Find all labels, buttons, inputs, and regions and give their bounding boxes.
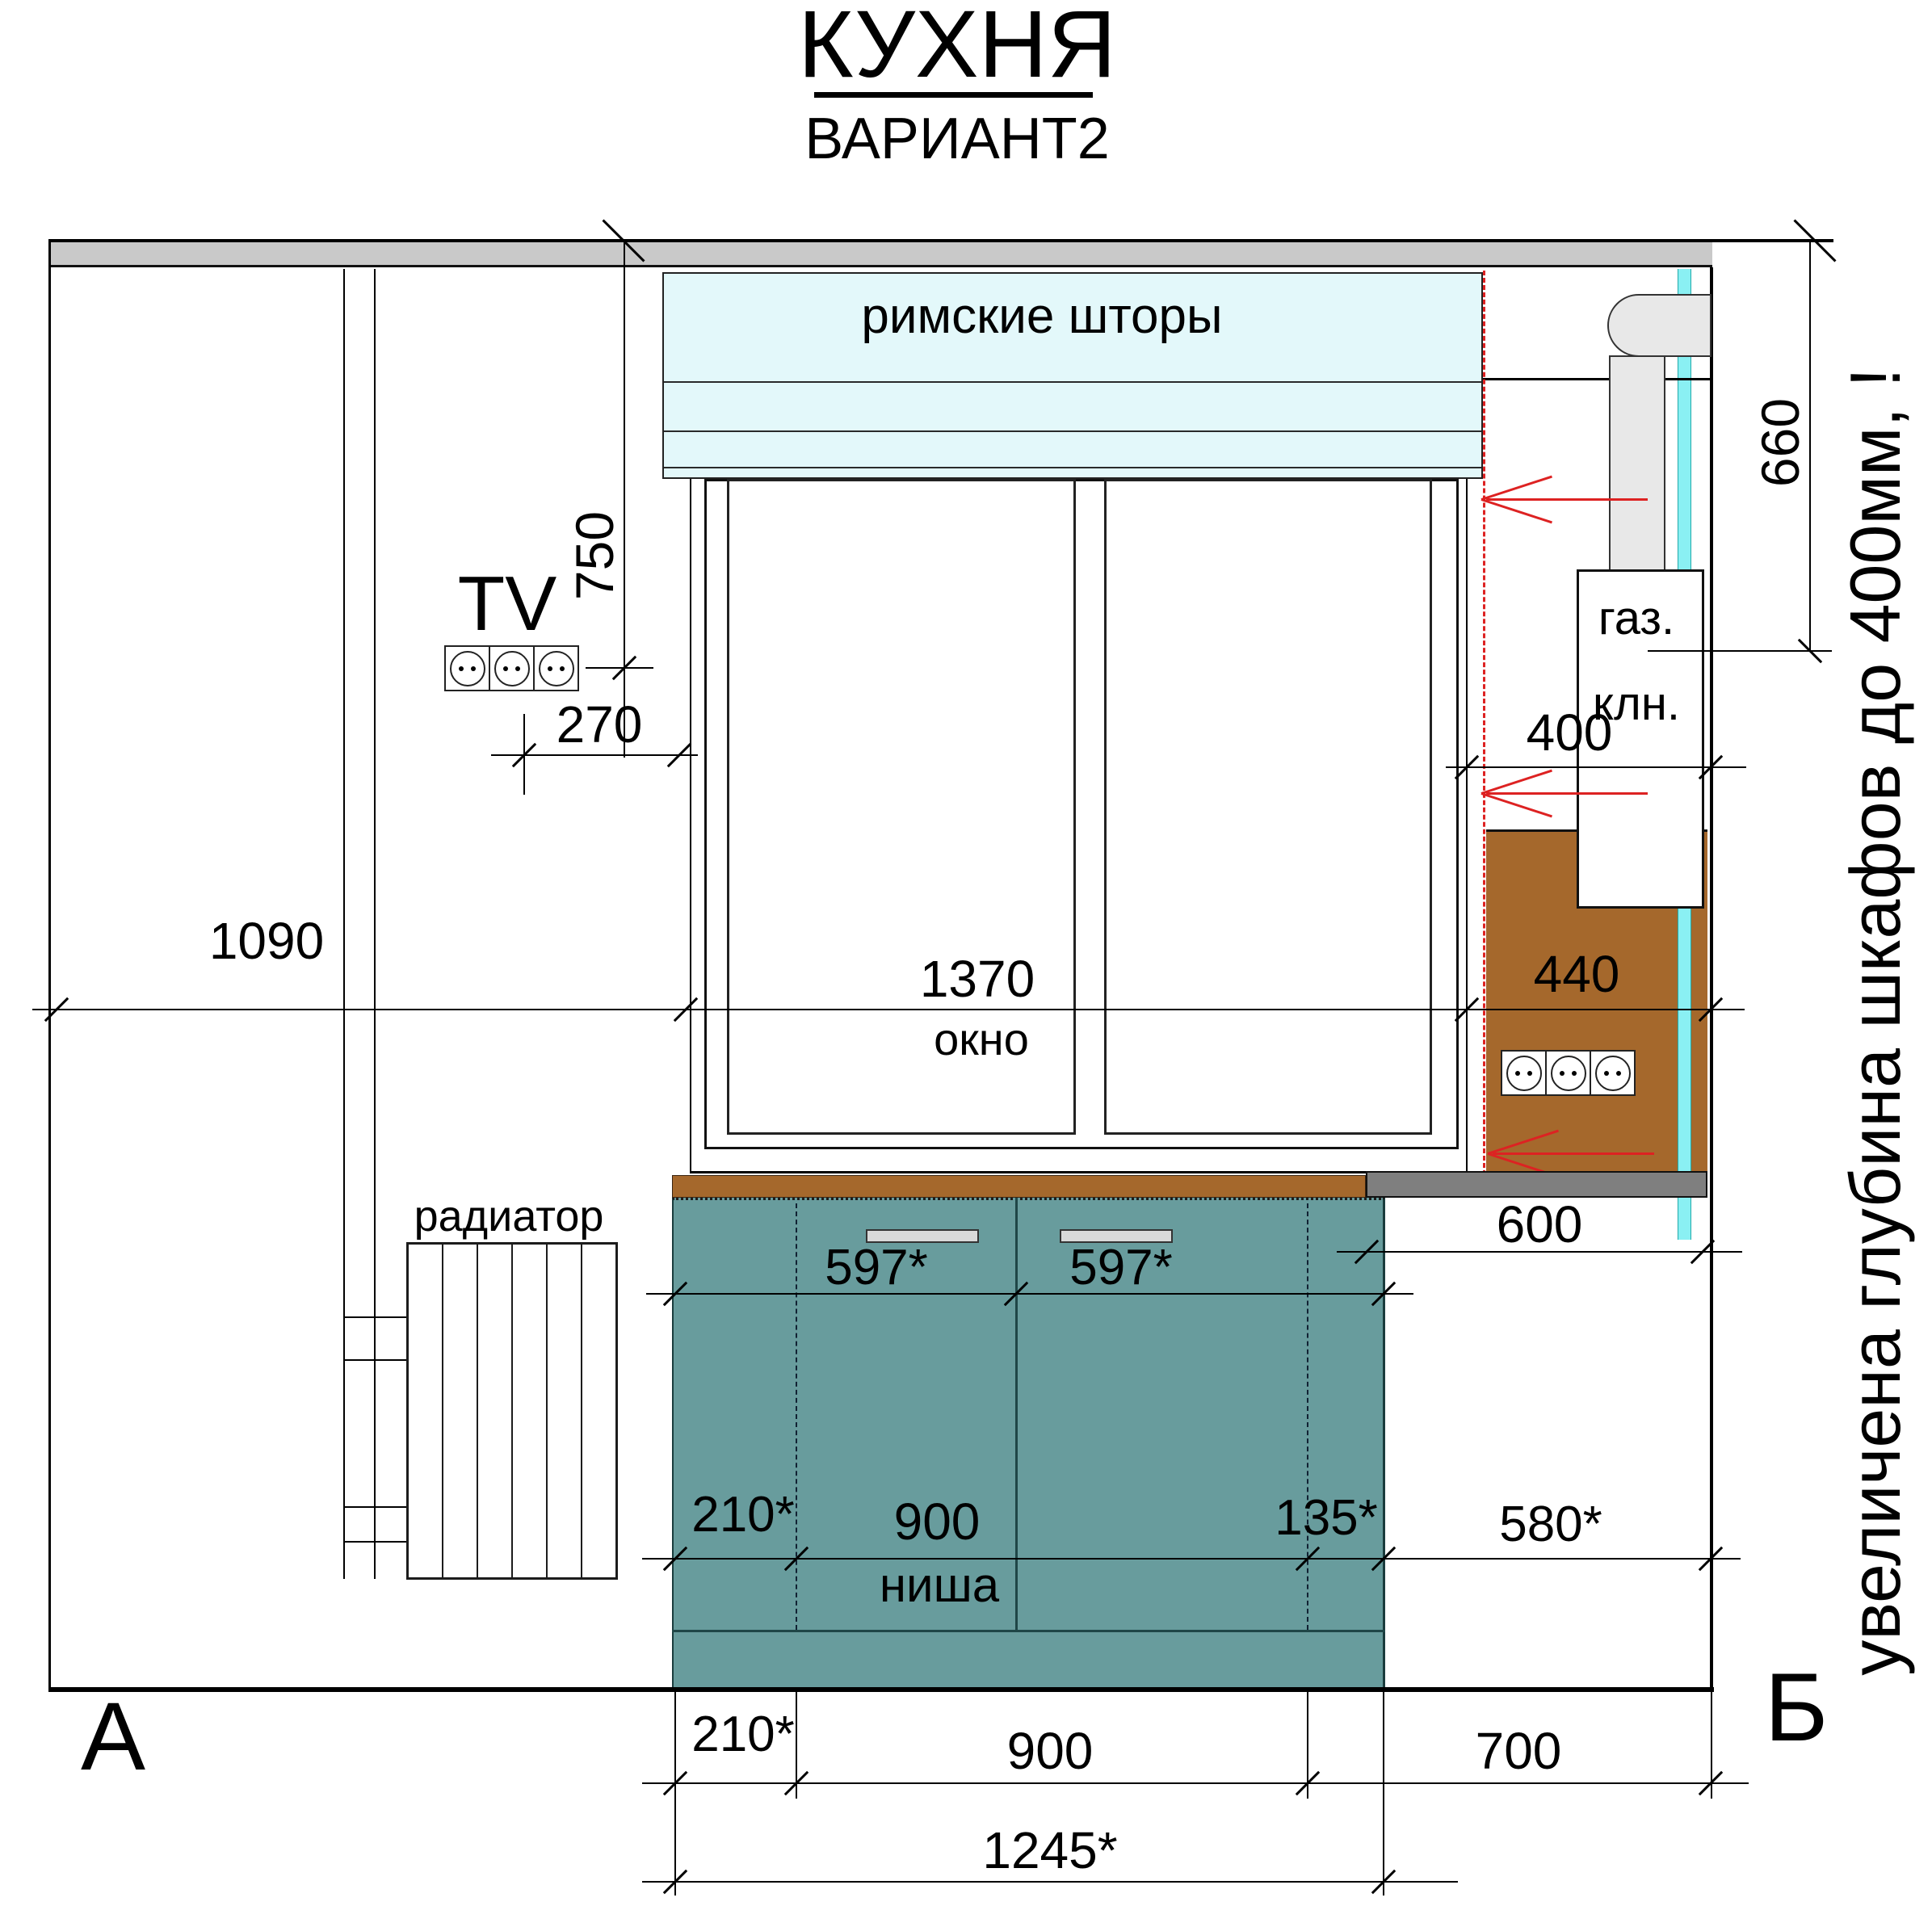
dim-210-niche-text: 210*	[691, 1490, 795, 1540]
dim-750-text: 750	[568, 511, 621, 600]
socket-icon	[444, 645, 490, 691]
floor-line	[48, 1687, 1714, 1692]
niche-boundary-left	[796, 1203, 797, 1630]
pipe-line-2	[374, 269, 376, 1579]
dim-580-text: 580*	[1499, 1500, 1602, 1550]
base-cabinet-block	[672, 1198, 1385, 1687]
cabinet-divider	[1015, 1198, 1018, 1630]
tv-socket-group	[446, 645, 579, 691]
pipe-connector-top-1	[343, 1316, 406, 1318]
page-subtitle: ВАРИАНТ2	[804, 110, 1109, 168]
wall-left-line	[48, 239, 51, 1690]
blind-fold-3	[664, 467, 1481, 468]
page-title: КУХНЯ	[798, 0, 1116, 92]
plinth-line	[672, 1630, 1385, 1632]
dim-600-text: 600	[1497, 1199, 1583, 1250]
wall-mark-b: Б	[1765, 1659, 1829, 1756]
wall-mark-a: А	[81, 1688, 145, 1785]
upper-zone-line	[1483, 378, 1710, 380]
dim-700-base-text: 700	[1476, 1725, 1562, 1777]
window-sash-right	[1104, 479, 1432, 1135]
dim-400-line	[1446, 766, 1746, 768]
relocation-arrow-middle	[1486, 792, 1648, 795]
window-niche-left-line	[690, 479, 691, 1173]
dim-210-base-text: 210*	[691, 1710, 795, 1760]
title-underline	[814, 92, 1093, 98]
gas-column-label-1: газ.	[1598, 595, 1674, 642]
worktop-socket-group	[1502, 1050, 1636, 1096]
niche-boundary-right	[1307, 1203, 1308, 1630]
tv-label: TV	[458, 565, 557, 643]
dim-900-niche-text: 900	[894, 1496, 981, 1547]
dim-440-text: 440	[1534, 948, 1620, 1000]
socket-icon	[489, 645, 535, 691]
socket-icon	[1545, 1050, 1591, 1096]
radiator-label: радиатор	[414, 1194, 604, 1238]
flue-duct	[1609, 355, 1665, 571]
dim-400-text: 400	[1527, 707, 1613, 758]
relocation-dashed-line	[1483, 271, 1485, 1175]
pipe-connector-top-2	[343, 1359, 406, 1361]
dim-597-left-text: 597*	[825, 1243, 928, 1293]
dim-270-text: 270	[556, 699, 643, 750]
dim-niche-line	[642, 1558, 1741, 1560]
relocation-arrow-bottom	[1493, 1152, 1654, 1155]
dim-1090-text: 1090	[209, 915, 324, 967]
kitchen-elevation-drawing: КУХНЯ ВАРИАНТ2 радиатор TV римские шторы	[0, 0, 1932, 1927]
niche-label: ниша	[880, 1561, 999, 1610]
dim-base-row1-line	[642, 1782, 1749, 1784]
pipe-connector-bottom-1	[343, 1506, 406, 1508]
ext-1712	[1383, 1692, 1384, 1896]
socket-icon	[533, 645, 579, 691]
blind-label: римские шторы	[861, 292, 1222, 342]
ceiling-band	[48, 242, 1712, 267]
dim-597-right-text: 597*	[1069, 1243, 1173, 1293]
window-sill-line	[690, 1171, 1468, 1173]
pipe-connector-bottom-2	[343, 1541, 406, 1543]
blind-fold-2	[664, 430, 1481, 432]
pipe-line-1	[343, 269, 345, 1579]
countertop	[672, 1175, 1366, 1198]
dim-660-ext	[1648, 650, 1832, 652]
ext-835	[674, 1692, 676, 1896]
socket-icon	[1501, 1050, 1547, 1096]
dim-1370-text: 1370	[920, 953, 1035, 1005]
dim-main-line	[32, 1009, 1745, 1010]
countertop-right-gray	[1366, 1171, 1707, 1198]
dim-750-line	[624, 239, 625, 758]
socket-icon	[1590, 1050, 1636, 1096]
note-rotated-text: увеличена глубина шкафов до 400мм, !	[1840, 367, 1911, 1676]
socket-leader-line	[586, 667, 653, 669]
dim-135-text: 135*	[1275, 1493, 1378, 1543]
dim-900-base-text: 900	[1007, 1725, 1094, 1777]
dim-597-line	[646, 1293, 1413, 1295]
blind-fold-1	[664, 381, 1481, 383]
dim-1245-text: 1245*	[982, 1824, 1117, 1876]
dim-660-text: 660	[1753, 398, 1807, 487]
window-label: окно	[934, 1017, 1029, 1062]
relocation-arrow-top	[1486, 498, 1648, 501]
radiator	[406, 1242, 618, 1580]
dim-base-row2-line	[642, 1881, 1458, 1883]
hood-rounded-box	[1607, 294, 1711, 357]
wall-right-line	[1710, 267, 1713, 1689]
